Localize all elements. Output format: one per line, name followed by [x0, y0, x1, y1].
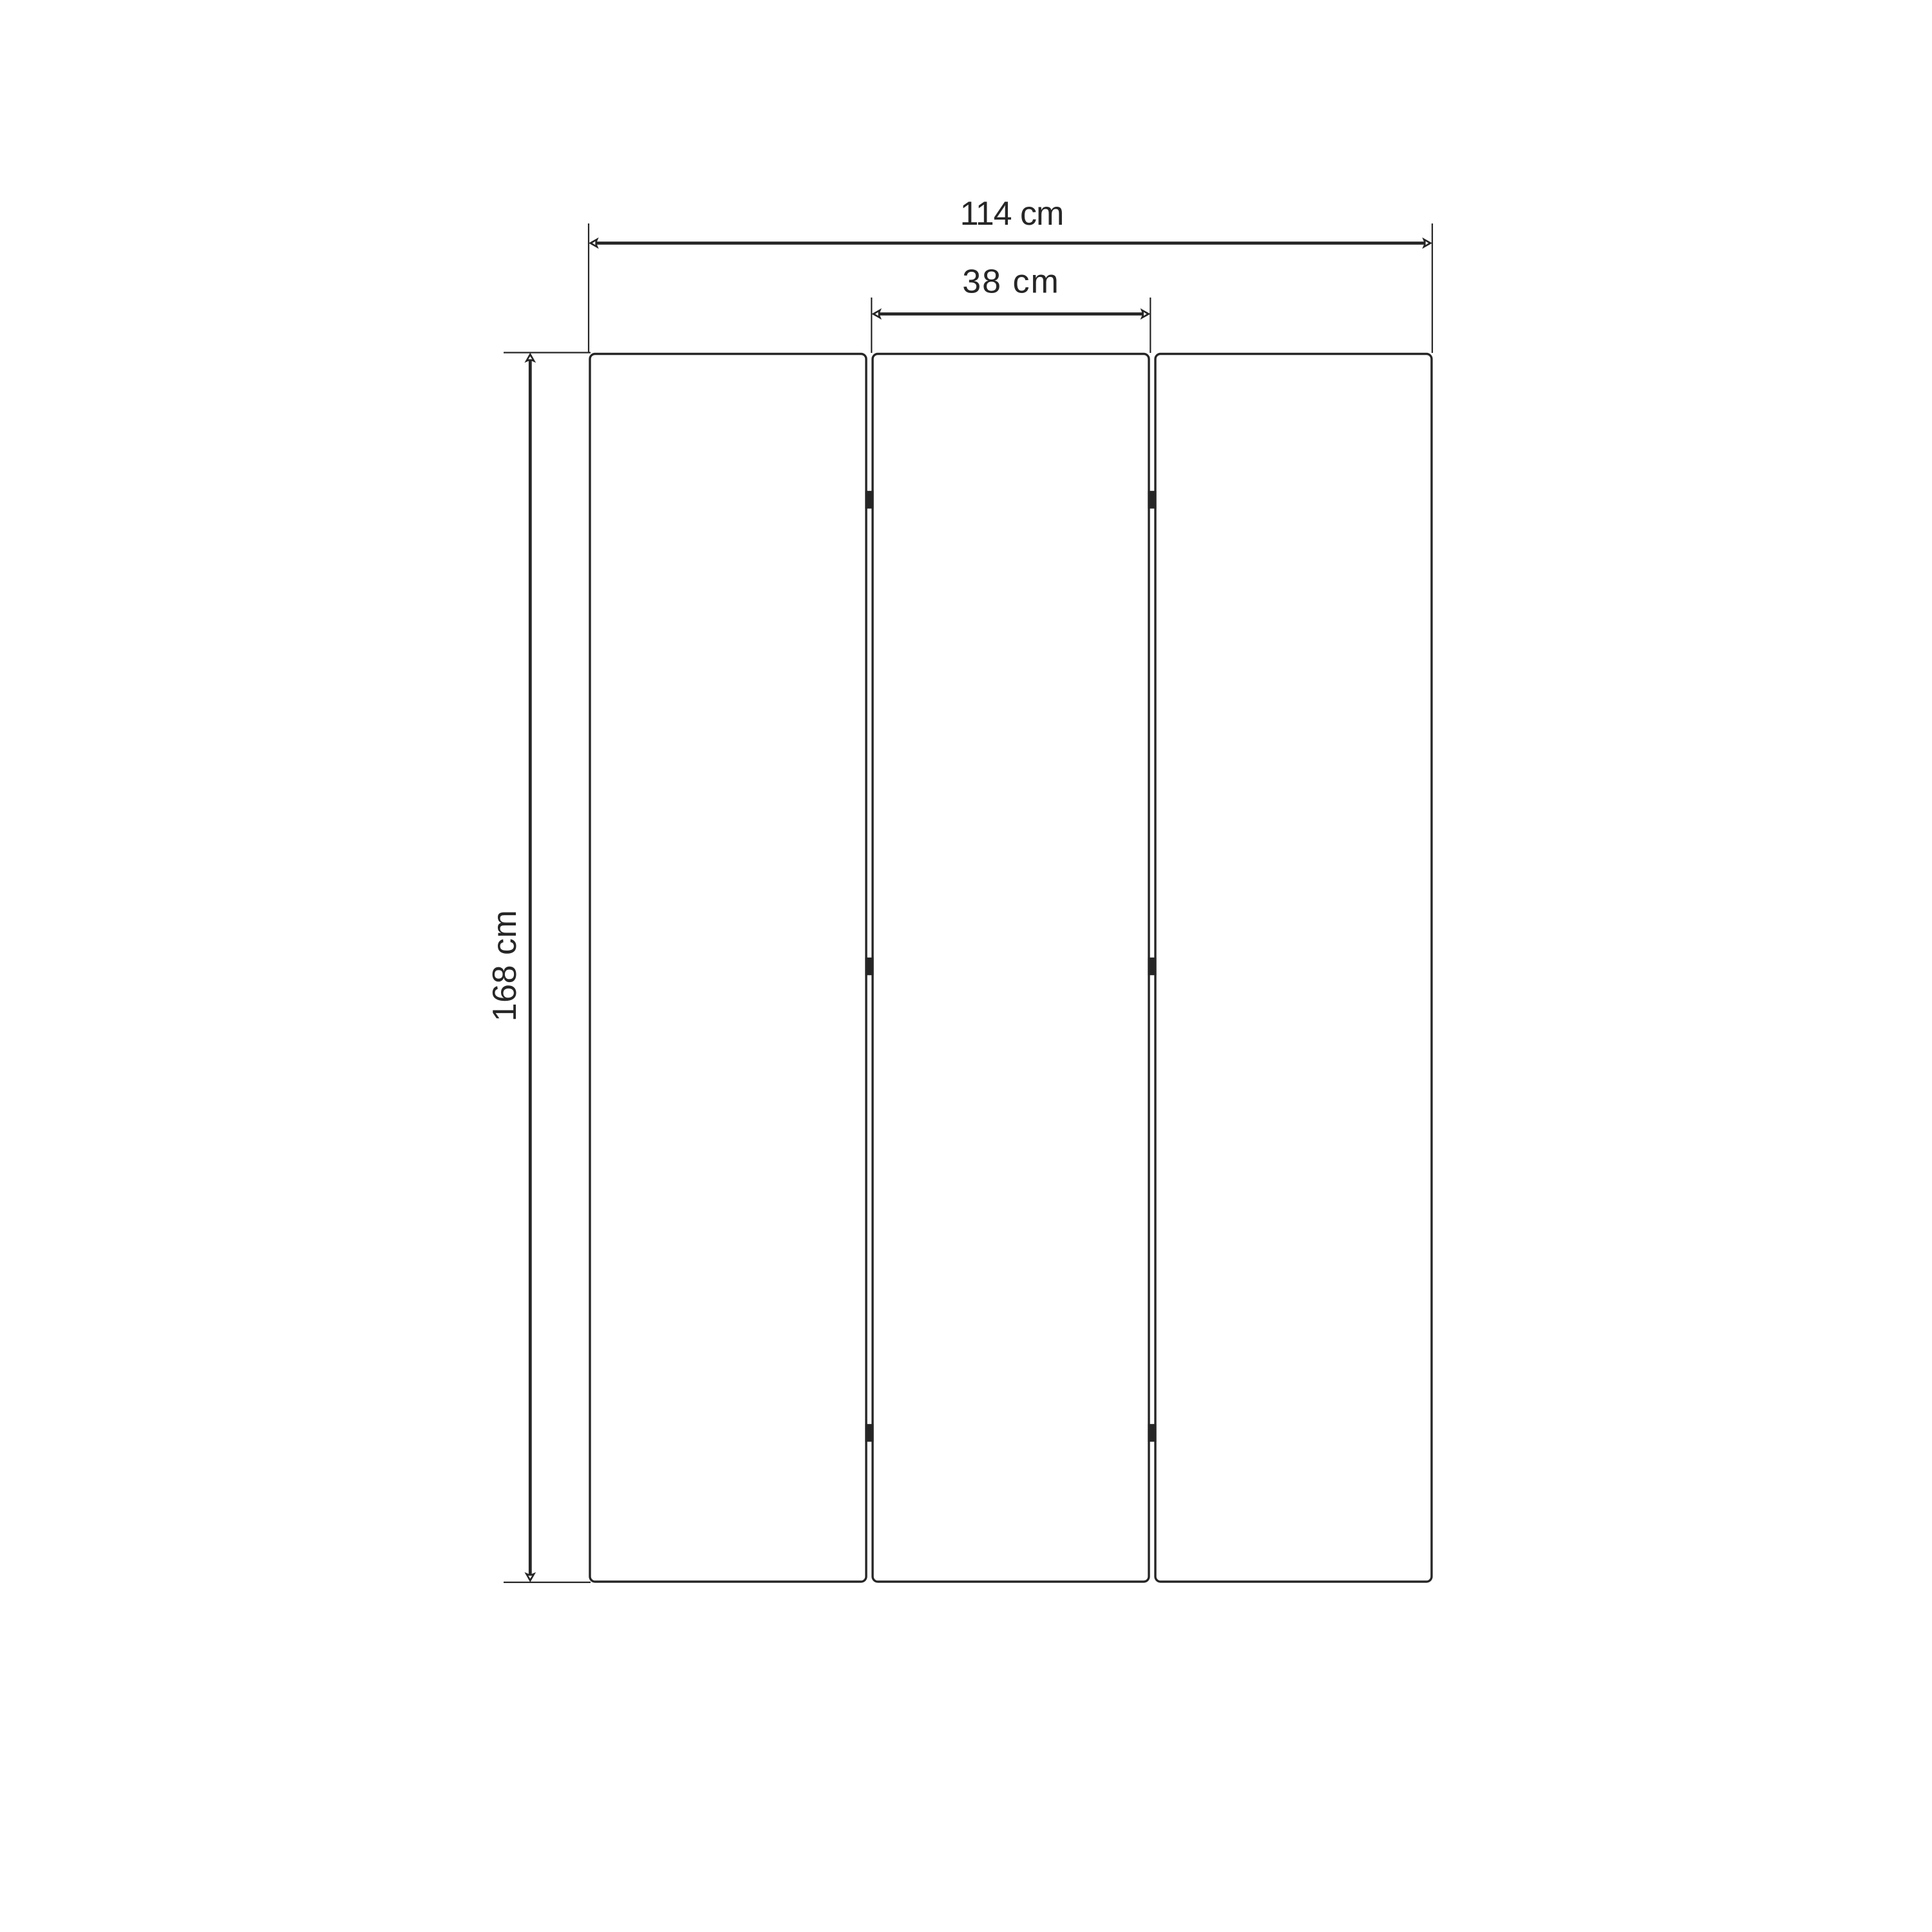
svg-text:114 cm: 114 cm [960, 195, 1064, 232]
svg-text:168 cm: 168 cm [486, 910, 524, 1022]
svg-text:38 cm: 38 cm [962, 263, 1060, 301]
